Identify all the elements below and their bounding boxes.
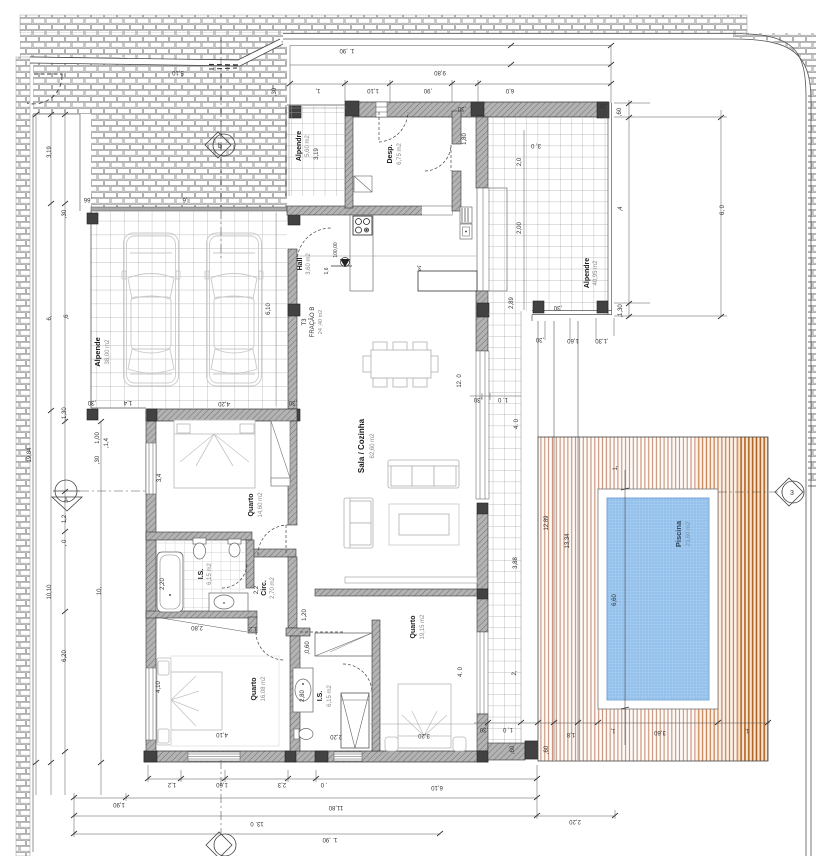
svg-text:I.S.: I.S.	[317, 691, 324, 702]
svg-text:2,80: 2,80	[191, 624, 203, 630]
svg-text:,30: ,30	[62, 209, 68, 218]
svg-text:Desp.: Desp.	[387, 144, 394, 163]
svg-text:1,6: 1,6	[324, 267, 330, 274]
svg-text:,66: ,66	[83, 196, 92, 202]
svg-text:,30: ,30	[288, 399, 297, 405]
svg-text:3,19: 3,19	[47, 146, 53, 158]
svg-text:2,70 m2: 2,70 m2	[270, 577, 276, 599]
svg-text:4,10: 4,10	[216, 731, 228, 737]
svg-text:,30: ,30	[457, 105, 466, 111]
svg-text:3,60 m2: 3,60 m2	[306, 253, 312, 275]
svg-text:1,4: 1,4	[123, 399, 132, 405]
svg-text:,6: ,6	[64, 314, 70, 320]
svg-text:Alpendre: Alpendre	[296, 131, 303, 161]
svg-text:6,15 m2: 6,15 m2	[327, 685, 333, 707]
svg-text:3,88: 3,88	[513, 557, 519, 569]
svg-text:38,00 m2: 38,00 m2	[105, 339, 111, 365]
svg-text:Circ.: Circ.	[261, 580, 268, 596]
svg-text:,1,30: ,1,30	[595, 337, 609, 343]
svg-text:,30: ,30	[553, 304, 562, 310]
svg-text:6,0: 6,0	[505, 87, 514, 93]
svg-text:,90: ,90	[423, 87, 432, 93]
svg-text:,60: ,60	[510, 745, 516, 754]
svg-text:62,60 m2: 62,60 m2	[370, 433, 376, 459]
svg-text:2,89: 2,89	[509, 297, 515, 309]
svg-text:, 0: , 0	[62, 539, 68, 546]
svg-text:. 0: . 0	[320, 781, 327, 787]
svg-text:,4: ,4	[618, 206, 624, 212]
svg-text:2,80: 2,80	[300, 690, 306, 702]
svg-text:1,90: 1,90	[113, 801, 125, 807]
svg-text:Hall: Hall	[297, 258, 304, 271]
svg-text:6,: 6,	[47, 315, 53, 320]
svg-text:1,10: 1,10	[367, 87, 379, 93]
svg-text:1,: 1,	[610, 727, 615, 733]
svg-text:2,20: 2,20	[569, 818, 581, 824]
svg-text:1, 0: 1, 0	[502, 726, 513, 732]
svg-text:1,8: 1,8	[566, 731, 575, 737]
svg-text:6,10: 6,10	[431, 784, 443, 790]
svg-text:Quarto: Quarto	[251, 678, 258, 701]
svg-text:T3: T3	[302, 318, 308, 326]
svg-text:3,20: 3,20	[418, 732, 430, 738]
svg-text:2,20: 2,20	[330, 733, 342, 739]
svg-text:24 ,40 m2: 24 ,40 m2	[318, 310, 324, 334]
svg-text:FRAÇÃO B: FRAÇÃO B	[309, 307, 316, 338]
svg-text:9,80: 9,80	[434, 69, 446, 75]
svg-text:23,60 m2: 23,60 m2	[686, 521, 692, 547]
svg-text:10,: 10,	[97, 586, 103, 595]
svg-text:6,20: 6,20	[62, 650, 68, 662]
svg-text:Alpendre: Alpendre	[584, 258, 591, 288]
svg-text:19,15 m2: 19,15 m2	[420, 614, 426, 640]
svg-text:16,08 m2: 16,08 m2	[261, 676, 267, 702]
svg-text:3: 3	[790, 490, 794, 497]
svg-text:3, 0: 3, 0	[530, 142, 541, 148]
svg-text:1,20: 1,20	[302, 609, 308, 621]
svg-text:1,: 1,	[315, 87, 320, 93]
svg-text:Quarto: Quarto	[248, 494, 255, 517]
svg-text:2,2: 2,2	[254, 585, 260, 594]
svg-text:5,60 m2: 5,60 m2	[305, 135, 311, 157]
svg-text:,60: ,60	[544, 745, 550, 754]
svg-text:1,80: 1,80	[462, 133, 468, 145]
svg-text:2,00: 2,00	[517, 222, 523, 234]
svg-text:2,20: 2,20	[160, 578, 166, 590]
svg-text:2,: 2,	[512, 670, 518, 675]
svg-text:1,: 1,	[744, 727, 749, 733]
svg-text:10,10: 10,10	[47, 584, 53, 600]
svg-text:13. 0: 13. 0	[250, 820, 264, 826]
svg-text:Alpende: Alpende	[93, 337, 102, 367]
svg-text:19,84: 19,84	[27, 447, 33, 463]
svg-text:,30: ,30	[272, 87, 278, 96]
svg-text:2,0: 2,0	[517, 157, 523, 166]
svg-text:6,15 m2: 6,15 m2	[207, 563, 213, 585]
svg-text:4. 0: 4. 0	[514, 418, 520, 429]
svg-text:6,10: 6,10	[266, 303, 272, 315]
svg-text:11,80: 11,80	[328, 804, 343, 810]
svg-text:1,2: 1,2	[167, 781, 176, 787]
svg-text:5,10: 5,10	[172, 69, 184, 75]
svg-text:1,: 1,	[613, 465, 619, 470]
svg-text:,30: ,30	[473, 396, 482, 402]
svg-text:,1,30: ,1,30	[618, 304, 624, 318]
svg-text:b: b	[218, 143, 222, 150]
svg-text:2,3: 2,3	[277, 781, 286, 787]
svg-text:4,10: 4,10	[156, 681, 162, 693]
svg-text:3,4: 3,4	[157, 473, 163, 482]
svg-text:6,75 m2: 6,75 m2	[397, 143, 403, 165]
svg-text:1. ,90: 1. ,90	[339, 47, 355, 53]
svg-text:1,60: 1,60	[567, 337, 579, 343]
svg-text:,6: ,6	[182, 196, 188, 202]
svg-text:12,89: 12,89	[544, 515, 550, 531]
svg-text:Sala / Cozinha: Sala / Cozinha	[357, 418, 366, 473]
svg-text:,1,4: ,1,4	[104, 437, 110, 448]
svg-text:1,2: 1,2	[62, 514, 68, 523]
svg-text:,0,60: ,0,60	[305, 641, 311, 655]
svg-text:1,2: 1,2	[248, 625, 257, 631]
svg-text:3,60: 3,60	[654, 729, 666, 735]
svg-text:4,20: 4,20	[218, 400, 230, 406]
svg-text:3,: 3,	[416, 264, 421, 270]
svg-text:,30: ,30	[95, 455, 101, 464]
svg-text:Quarto: Quarto	[410, 616, 417, 639]
svg-text:6,60: 6,60	[612, 594, 618, 606]
svg-text:4. 0: 4. 0	[458, 666, 464, 677]
svg-text:13,34: 13,34	[565, 533, 571, 549]
svg-text:A: A	[64, 498, 68, 504]
svg-text:,30: ,30	[599, 102, 608, 108]
svg-text:1,00: 1,00	[95, 432, 101, 444]
svg-text:1. ,90: 1. ,90	[322, 836, 338, 842]
svg-text:1,60: 1,60	[216, 781, 228, 787]
svg-text:,30: ,30	[535, 336, 544, 342]
svg-text:14,60 m2: 14,60 m2	[258, 492, 264, 518]
svg-text:40,95 m2: 40,95 m2	[593, 260, 599, 286]
svg-text:100,00: 100,00	[333, 242, 339, 258]
svg-text:6, 0: 6, 0	[720, 204, 726, 215]
svg-text:,30: ,30	[87, 399, 96, 405]
svg-text:3,19: 3,19	[314, 148, 320, 160]
svg-text:,60: ,60	[617, 107, 623, 116]
svg-text:12. 0: 12. 0	[457, 374, 463, 388]
svg-text:I.S.: I.S.	[198, 569, 205, 580]
svg-text:,30: ,30	[479, 726, 488, 732]
svg-text:,1,30: ,1,30	[62, 407, 68, 421]
svg-text:Piscina: Piscina	[674, 520, 683, 547]
svg-text:1. 0: 1. 0	[497, 396, 508, 402]
